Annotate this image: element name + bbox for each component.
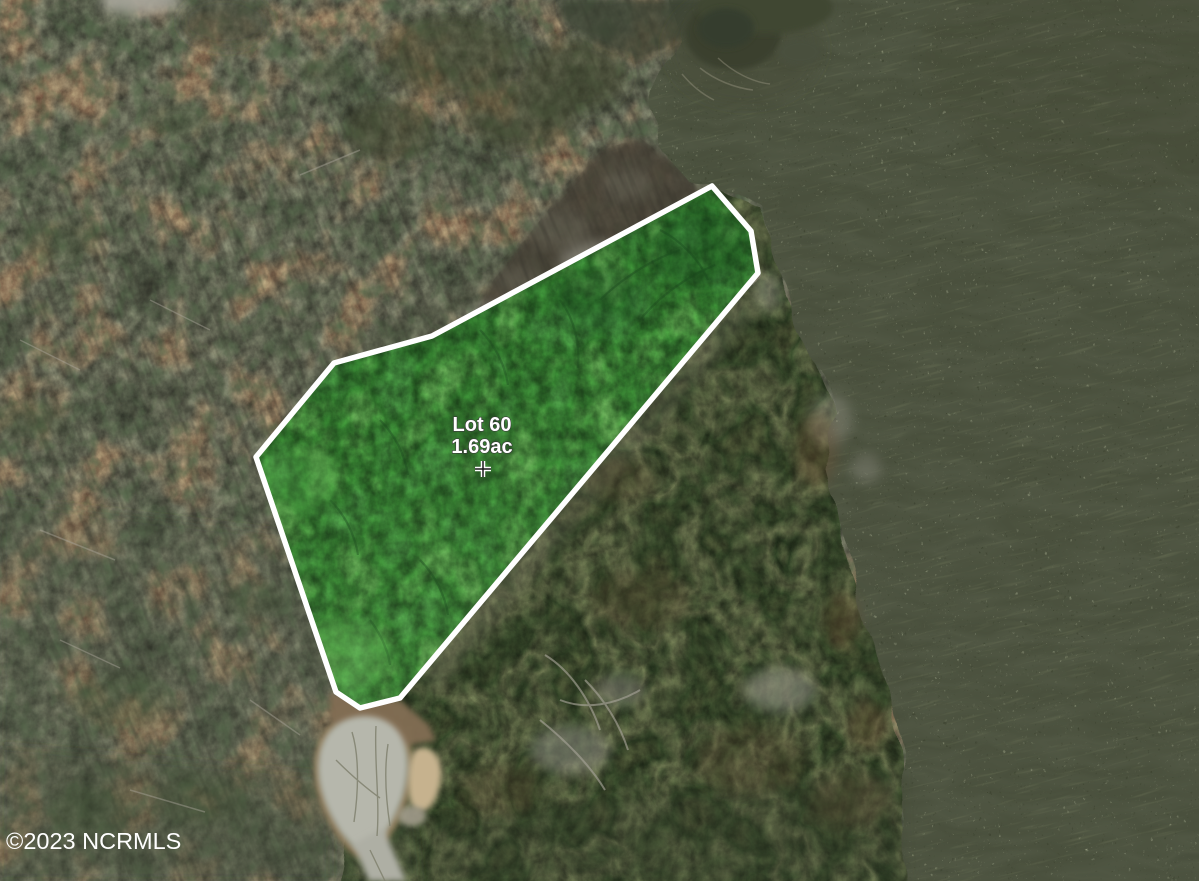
svg-text:©2023 NCRMLS: ©2023 NCRMLS bbox=[6, 828, 181, 854]
svg-text:1.69ac: 1.69ac bbox=[451, 436, 512, 458]
svg-text:Lot 60: Lot 60 bbox=[453, 414, 512, 436]
